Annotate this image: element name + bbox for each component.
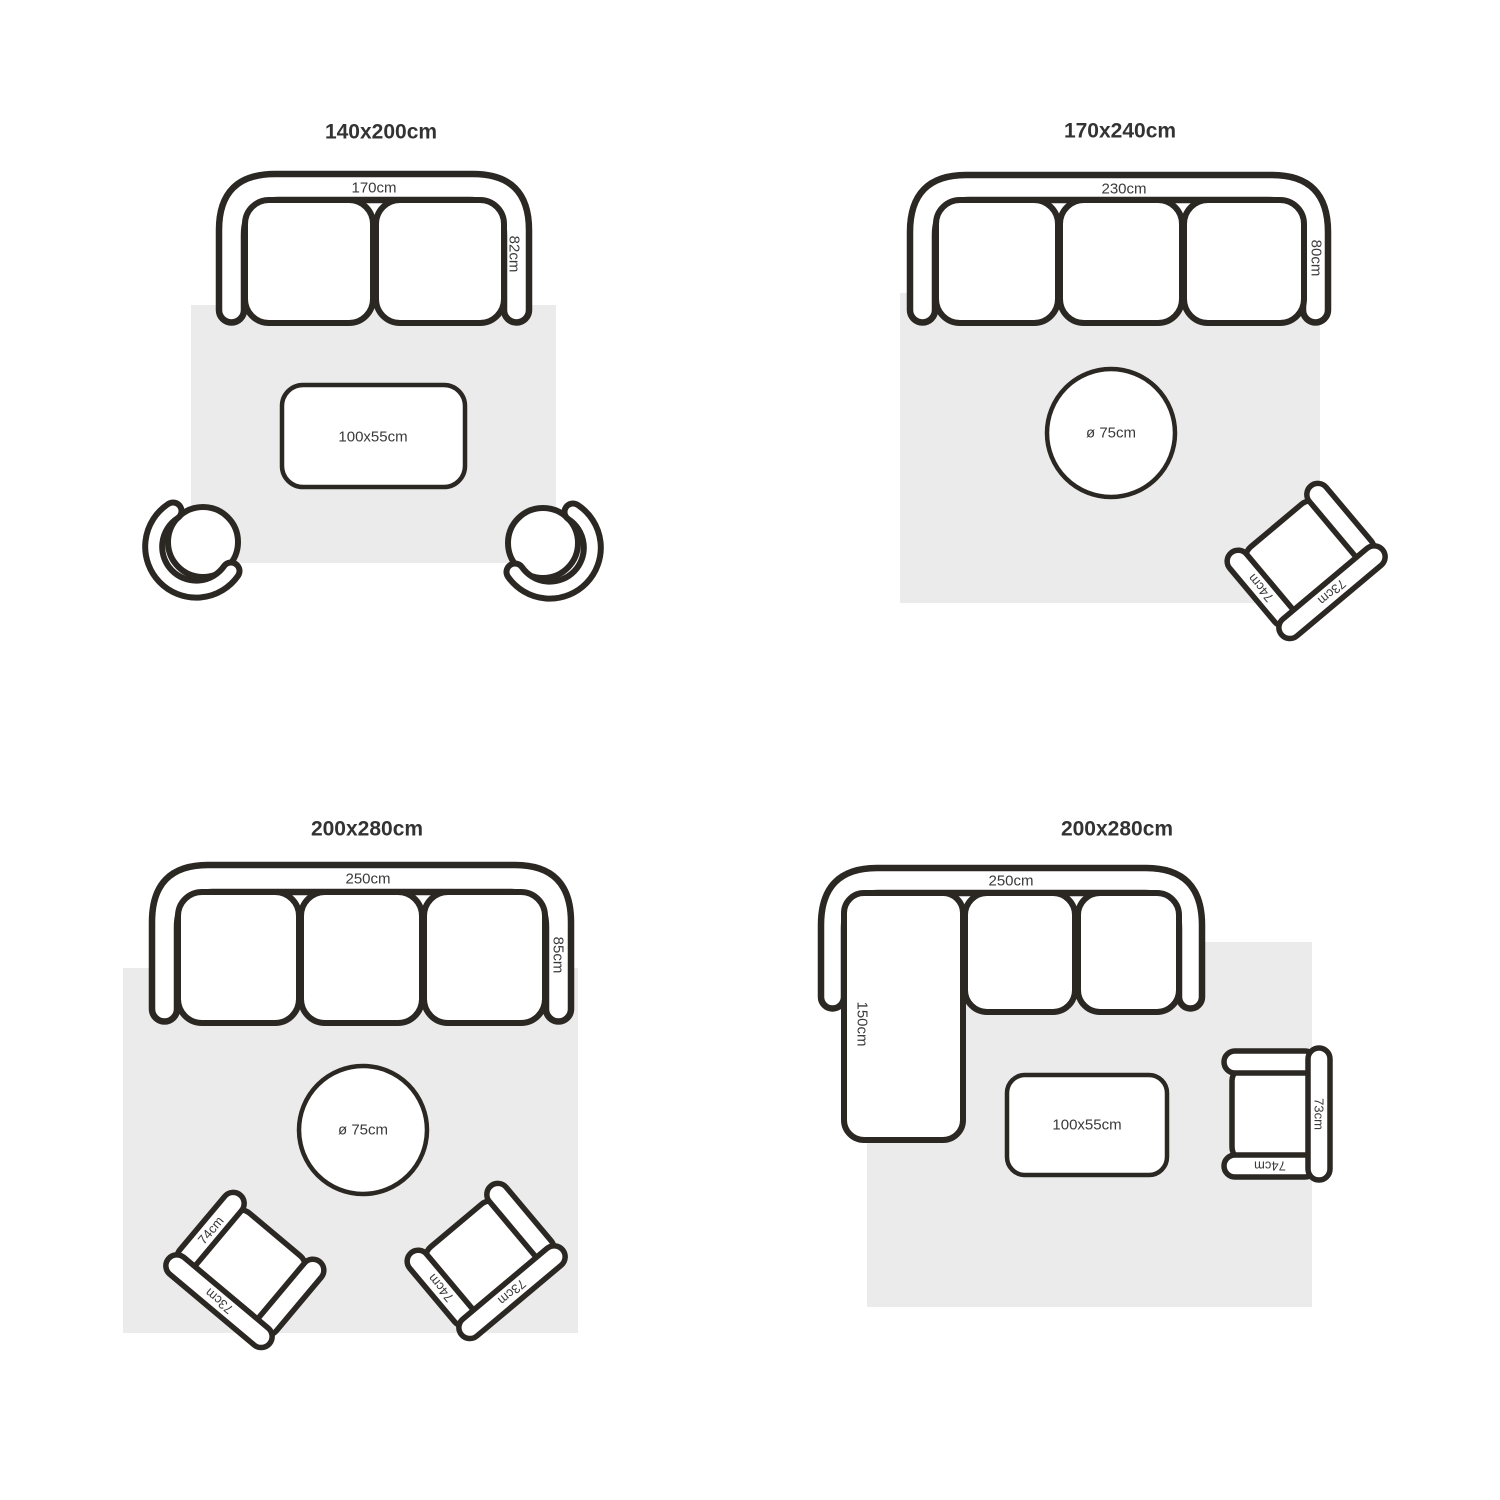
layout-title: 200x280cm xyxy=(1061,818,1173,841)
floor-plan-svg: 140x200cm 170cm 82cm 100x55cm 170x240cm … xyxy=(0,0,1500,1500)
round-chair-right xyxy=(508,508,592,590)
sofa-cushion xyxy=(1060,200,1182,323)
round-table-label: ø 75cm xyxy=(338,1122,388,1139)
sofa-width-label: 230cm xyxy=(1101,181,1146,198)
layout-200x280-b: 200x280cm 250cm 150cm 100x55cm 74cm 73cm xyxy=(821,818,1330,1308)
sofa-cushion xyxy=(245,200,373,323)
layout-170x240: 170x240cm 230cm 80cm ø 75cm 74cm 73cm xyxy=(900,120,1390,644)
coffee-table-label: 100x55cm xyxy=(1052,1117,1121,1134)
sofa-width-label: 250cm xyxy=(345,871,390,888)
sofa-cushion xyxy=(936,200,1058,323)
layout-title: 200x280cm xyxy=(311,818,423,841)
sofa-depth-label: 85cm xyxy=(550,937,567,974)
layout-200x280-a: 200x280cm 250cm 85cm ø 75cm 74cm 73cm 74… xyxy=(123,818,578,1353)
sofa-cushion xyxy=(424,892,545,1023)
sofa-depth-label: 80cm xyxy=(1308,240,1325,277)
armchair-back-label: 73cm xyxy=(1312,1098,1327,1130)
armchair-arm-label: 74cm xyxy=(1254,1159,1286,1174)
coffee-table-label: 100x55cm xyxy=(338,429,407,446)
sofa-cushion xyxy=(178,892,299,1023)
sofa-depth-label: 82cm xyxy=(506,236,523,273)
sofa-cushion xyxy=(1184,200,1304,323)
layout-title: 140x200cm xyxy=(325,121,437,144)
layout-140x200: 140x200cm 170cm 82cm 100x55cm xyxy=(154,121,593,591)
sofa-cushion xyxy=(376,200,504,323)
sofa-width-label: 250cm xyxy=(988,873,1033,890)
round-chair-left xyxy=(154,507,238,589)
chaise-length-label: 150cm xyxy=(854,1001,871,1046)
sofa-width-label: 170cm xyxy=(351,180,396,197)
sofa-cushion xyxy=(1078,893,1179,1012)
armchair: 74cm 73cm xyxy=(1224,1048,1330,1180)
round-table-label: ø 75cm xyxy=(1086,425,1136,442)
rug-size-guide: 140x200cm 170cm 82cm 100x55cm 170x240cm … xyxy=(0,0,1500,1500)
sofa-cushion xyxy=(965,893,1075,1012)
sofa-cushion xyxy=(301,892,422,1023)
layout-title: 170x240cm xyxy=(1064,120,1176,143)
